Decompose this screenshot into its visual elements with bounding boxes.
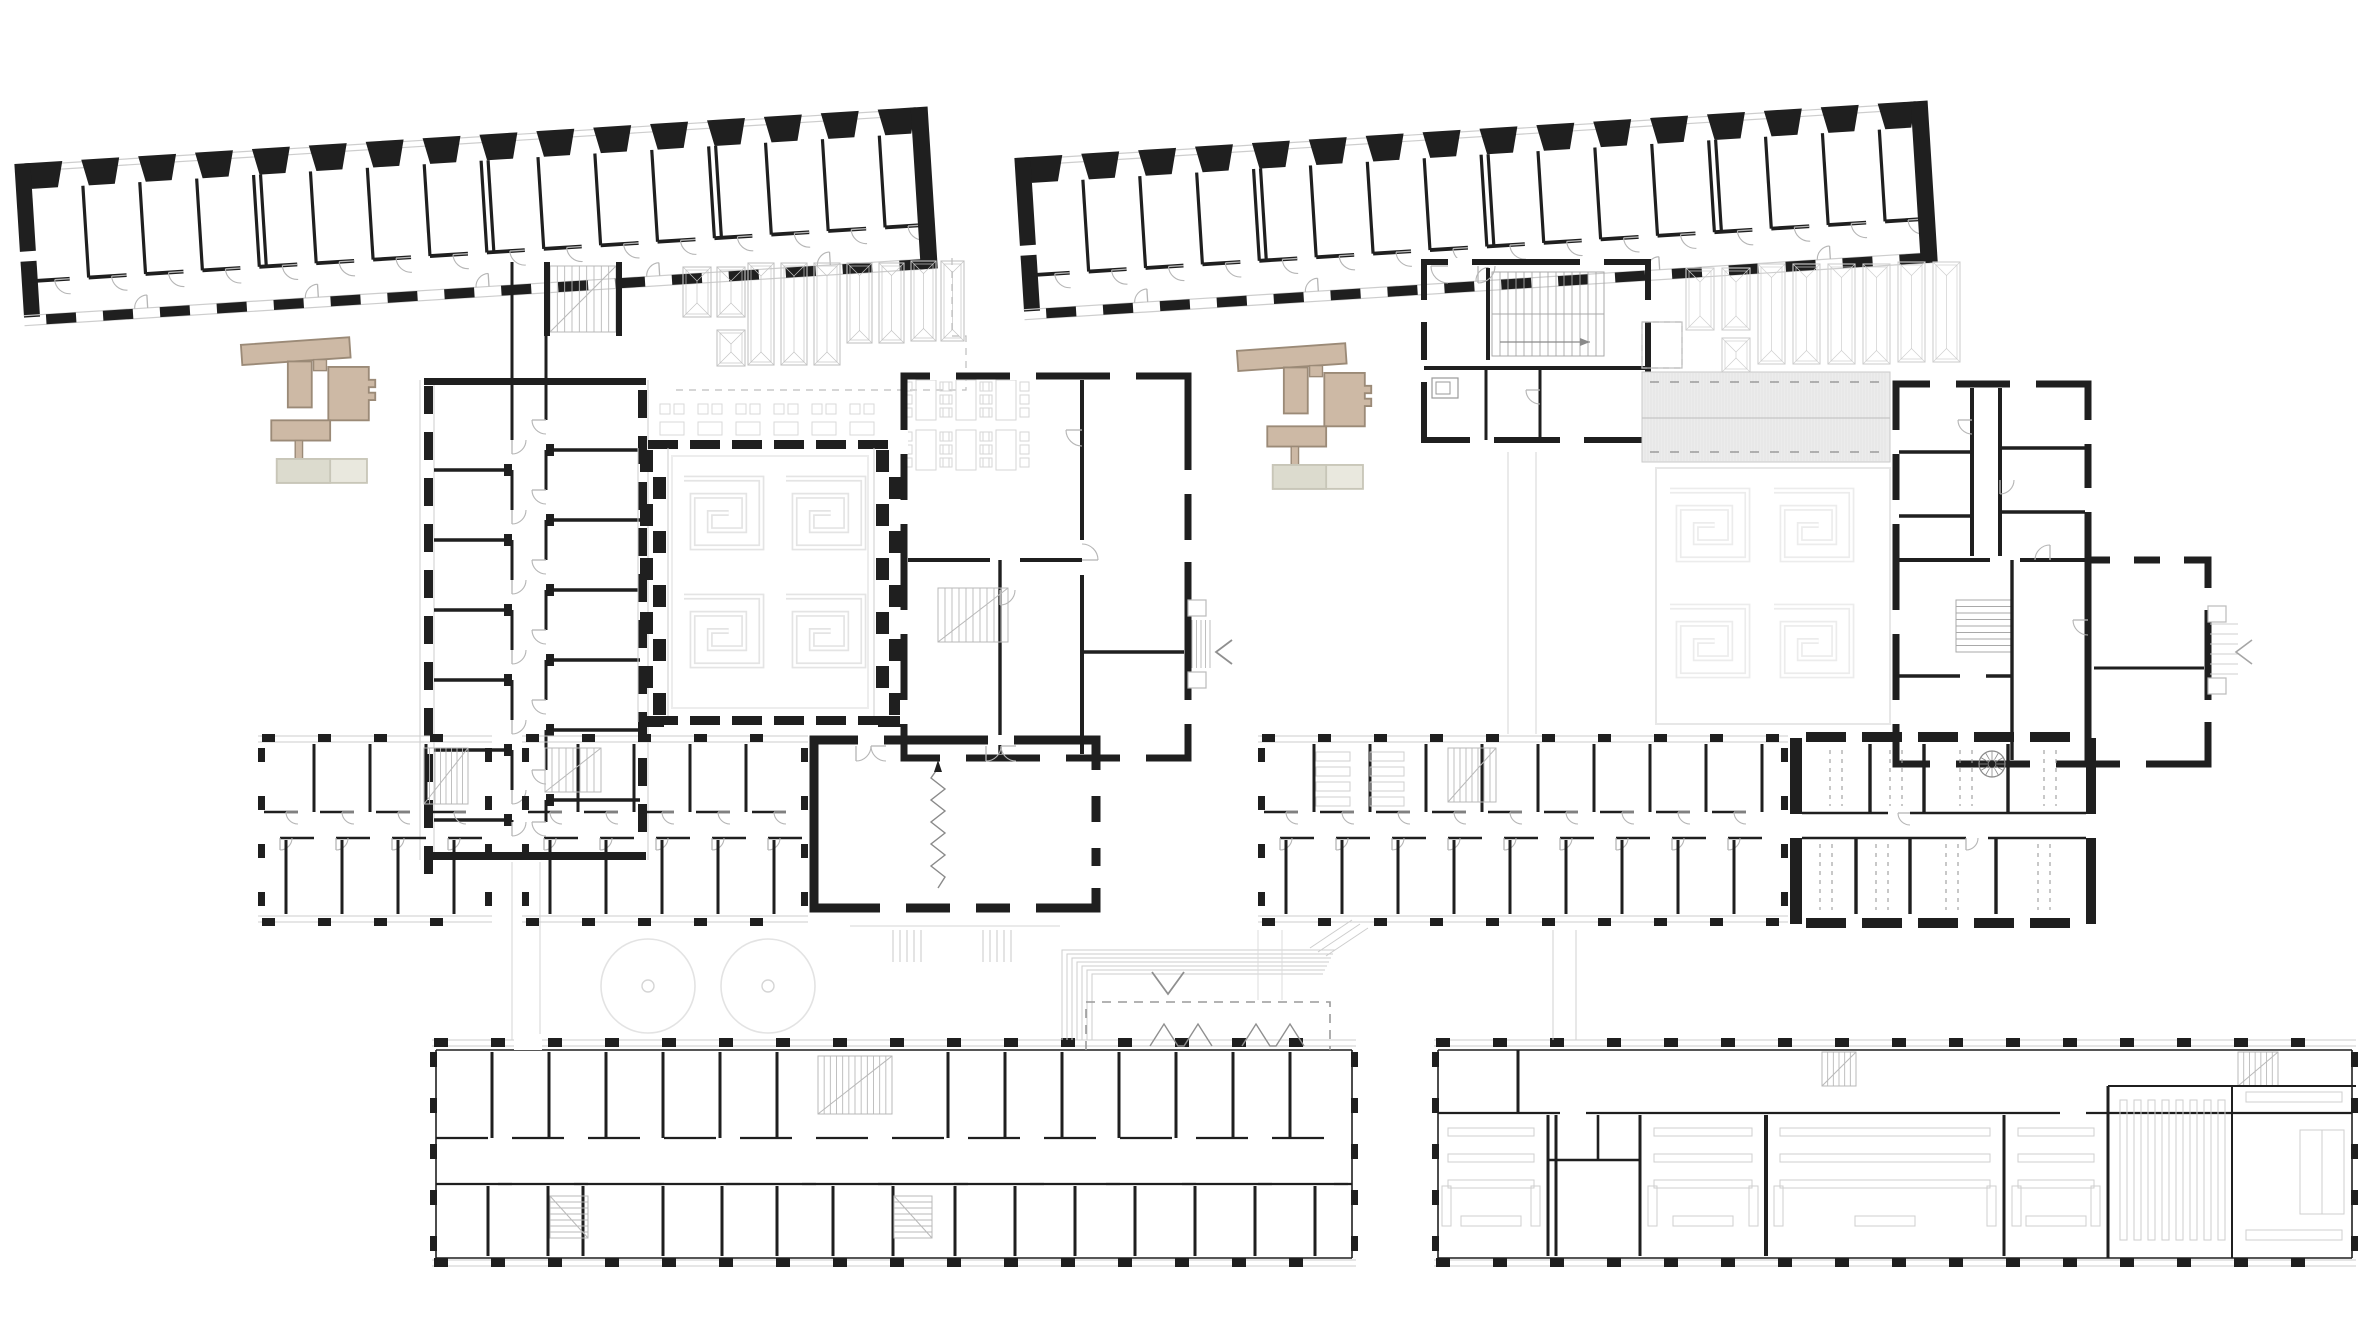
- classroom-wing: [14, 107, 937, 326]
- connector-paths: [1258, 930, 1576, 1040]
- lower-wing: [258, 734, 808, 926]
- trees: [601, 939, 815, 1033]
- right-plan-upper-floor: [1014, 101, 2358, 1267]
- east-block: [900, 372, 1232, 762]
- floor-plan-svg: [0, 0, 2364, 1330]
- site-key-icon: [241, 337, 375, 483]
- bottom-wing: [430, 1034, 1358, 1267]
- courtyard-void: [1656, 468, 1890, 724]
- left-plan-ground-floor: [14, 107, 1368, 1267]
- bottom-wing: [1432, 1038, 2358, 1267]
- skylight-roof-field: [674, 258, 966, 390]
- site-key-icon: [1237, 343, 1371, 489]
- entrance-steps-and-canopy: [1062, 920, 1368, 1050]
- classroom-wing: [1014, 101, 1937, 320]
- library-tables: [903, 380, 1029, 470]
- hatched-roof-band: [1642, 372, 1890, 462]
- drawing-sheet: [0, 0, 2364, 1330]
- assembly-hall: [814, 735, 1101, 962]
- east-block: [1892, 380, 2252, 768]
- courtyard-hall: [638, 404, 904, 727]
- skylight-roof-field: [1642, 262, 1960, 372]
- stair-block: [1420, 258, 1652, 734]
